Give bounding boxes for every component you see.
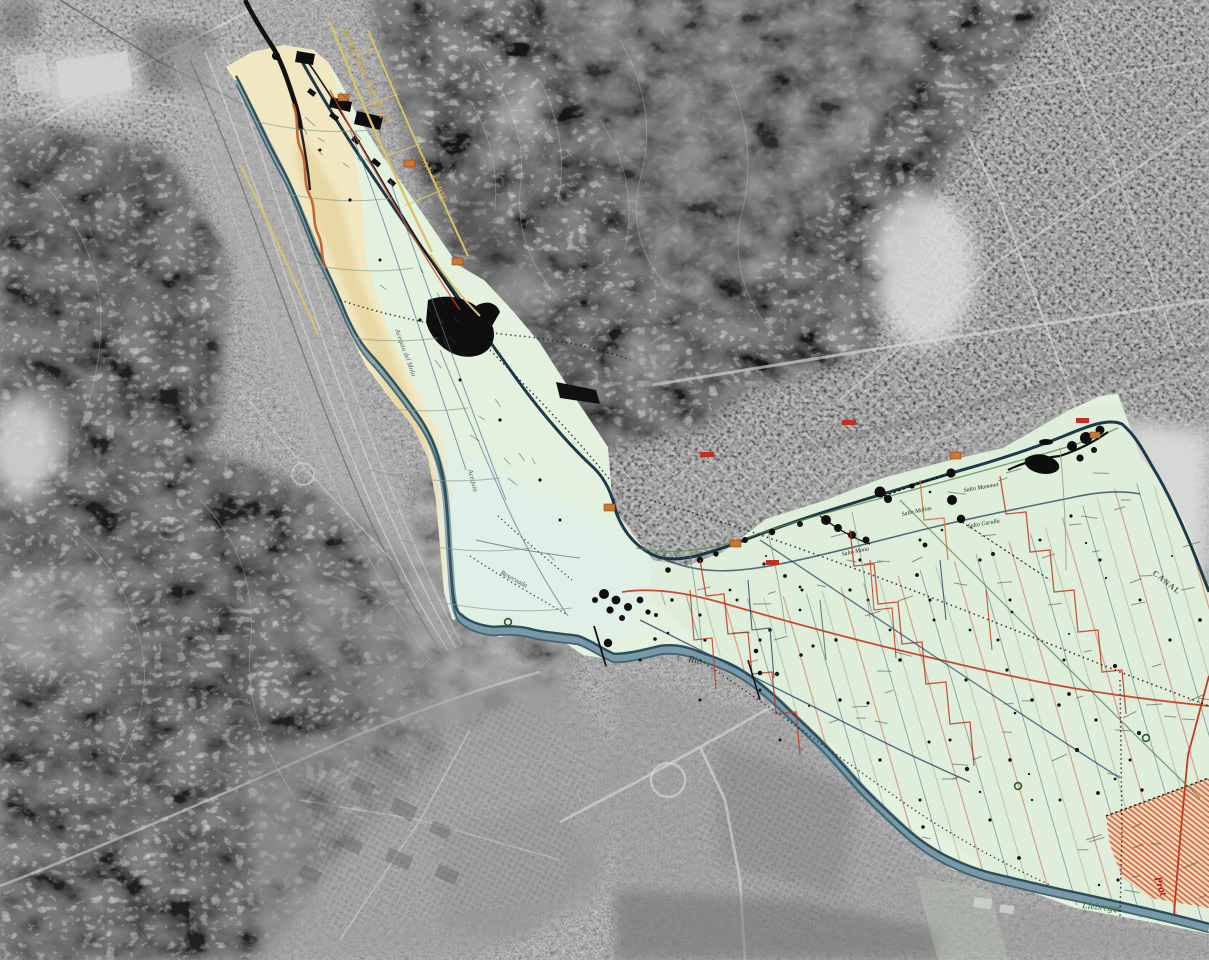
svg-text:Rio: Rio (687, 654, 703, 667)
svg-text:HOSPITALET: HOSPITALET (858, 454, 944, 466)
